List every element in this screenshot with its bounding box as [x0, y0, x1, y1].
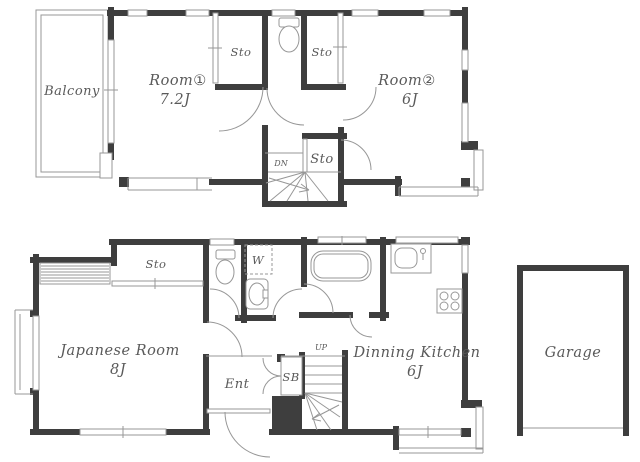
room1-label: Room① [148, 73, 207, 89]
sliding-door-sto-right [338, 13, 343, 83]
door-arc-entrance [225, 412, 270, 457]
window [424, 10, 450, 16]
door-arc-kitchen [350, 315, 372, 337]
japanese-room-area: 8J [110, 362, 127, 378]
sto-1f-label: Sto [146, 257, 167, 271]
garage-label: Garage [545, 345, 602, 361]
entrance-label: Ent [224, 377, 250, 392]
bay-window-room1 [128, 178, 212, 190]
bay-window-japanese-room [15, 310, 33, 394]
closet-hatch [40, 263, 110, 284]
door-arc-sto-hall [341, 140, 371, 170]
washbasin-icon [246, 279, 268, 309]
floorplan-page: Balcony [0, 0, 640, 462]
balcony-window [108, 40, 114, 143]
window [186, 10, 209, 16]
window [474, 150, 483, 190]
garage: Garage [520, 268, 626, 433]
dining-kitchen-area: 6J [407, 364, 424, 380]
terrace-line [399, 448, 483, 453]
wall-corner [461, 237, 470, 245]
entrance-door-sill [207, 409, 270, 413]
sto-hall-door [303, 139, 307, 172]
japanese-room-label: Japanese Room [57, 343, 180, 359]
room1-area: 7.2J [160, 92, 192, 108]
stove-icon [437, 289, 462, 313]
under-stair-structure [272, 396, 302, 430]
toilet-1f-icon [216, 250, 235, 284]
floor1-plan: UP Garage Sto Japanese Room 8J W Ent SB … [15, 236, 626, 457]
window [396, 237, 458, 243]
window [128, 10, 147, 16]
floor2-plan: Balcony [36, 10, 483, 204]
balcony-label: Balcony [43, 84, 100, 99]
bathtub-icon [311, 251, 371, 281]
sliding-door-sto-1f [112, 281, 203, 286]
window [352, 10, 378, 16]
sto-hall-label: Sto [310, 152, 333, 167]
shoe-cabinet-label: SB [282, 370, 299, 384]
stairs-2f: DN [265, 139, 341, 201]
door-arc-bath [304, 284, 333, 313]
kitchen-sink-icon [391, 244, 431, 273]
door-arc-room1 [219, 87, 263, 131]
window [33, 316, 39, 390]
window [210, 239, 234, 245]
sto-right-label: Sto [312, 45, 333, 59]
floorplan-drawing: Balcony [0, 0, 640, 462]
window [462, 50, 468, 70]
window [399, 429, 461, 435]
balcony: Balcony [36, 10, 108, 177]
window [462, 245, 468, 273]
washer-label: W [252, 253, 265, 267]
window [462, 103, 468, 142]
door-arcs-2f [219, 87, 376, 170]
door-arc-toilet-1f [210, 289, 239, 318]
stairs-down-label: DN [273, 159, 288, 168]
window-mullion [461, 178, 470, 187]
window [272, 10, 295, 16]
door-arc-shoebox-lower [263, 376, 281, 394]
door-arc-japanese-room [207, 322, 242, 357]
toilet-2f-icon [279, 18, 299, 52]
room2-label: Room② [377, 73, 436, 89]
bay-window-room2 [399, 187, 478, 196]
window [100, 153, 112, 178]
sto-left-label: Sto [231, 45, 252, 59]
door-arc-room2 [343, 87, 376, 120]
door-arc-toilet-2f [267, 88, 304, 125]
stairs-up-label: UP [315, 343, 328, 352]
room2-area: 6J [402, 92, 419, 108]
window [476, 407, 483, 449]
dining-kitchen-label: Dinning Kitchen [353, 345, 481, 361]
wall-nub [461, 428, 471, 437]
door-arc-washroom [273, 289, 302, 318]
